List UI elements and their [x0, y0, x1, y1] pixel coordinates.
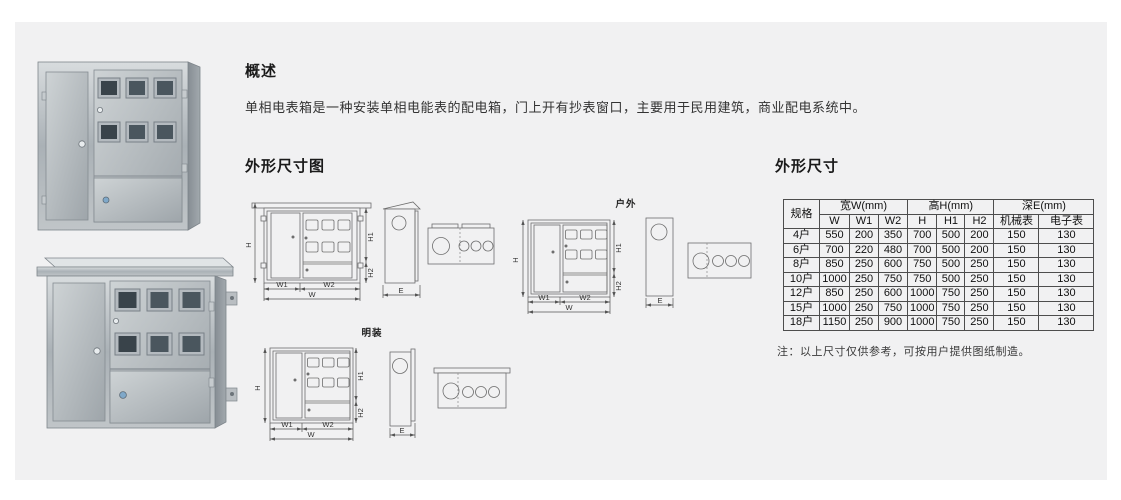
value-cell: 220 — [850, 243, 879, 258]
value-cell: 130 — [1039, 301, 1094, 316]
value-cell: 130 — [1039, 229, 1094, 244]
spec-cell: 10户 — [784, 272, 820, 287]
value-cell: 480 — [879, 243, 908, 258]
col-header-w1: W1 — [850, 214, 879, 229]
value-cell: 750 — [937, 301, 965, 316]
value-cell: 1000 — [820, 301, 850, 316]
overview-title: 概述 — [245, 60, 277, 81]
table-row: 8户850250600750500250150130 — [784, 258, 1094, 273]
value-cell: 250 — [850, 287, 879, 302]
value-cell: 200 — [965, 243, 994, 258]
overview-body: 单相电表箱是一种安装单相电能表的配电箱，门上开有抄表窗口，主要用于民用建筑，商业… — [245, 97, 866, 116]
value-cell: 150 — [994, 243, 1039, 258]
dim-label-h: H — [245, 242, 253, 247]
col-header-mech-meter: 机械表 — [994, 214, 1039, 229]
value-cell: 1000 — [820, 272, 850, 287]
value-cell: 250 — [965, 287, 994, 302]
dim-label-e: E — [657, 296, 662, 305]
value-cell: 700 — [820, 243, 850, 258]
diagram-group-surface: 明装 H H1 H2 W1 W2 W E — [253, 327, 510, 441]
value-cell: 350 — [879, 229, 908, 244]
value-cell: 1000 — [908, 316, 937, 331]
value-cell: 150 — [994, 272, 1039, 287]
value-cell: 1000 — [908, 301, 937, 316]
col-header-h2: H2 — [965, 214, 994, 229]
spec-cell: 8户 — [784, 258, 820, 273]
spec-cell: 15户 — [784, 301, 820, 316]
table-row: 10户1000250750750500250150130 — [784, 272, 1094, 287]
value-cell: 550 — [820, 229, 850, 244]
table-header-row-sub: W W1 W2 H H1 H2 机械表 电子表 — [784, 214, 1094, 229]
value-cell: 200 — [965, 229, 994, 244]
spec-cell: 12户 — [784, 287, 820, 302]
value-cell: 750 — [937, 287, 965, 302]
col-header-w: W — [820, 214, 850, 229]
spec-cell: 18户 — [784, 316, 820, 331]
value-cell: 130 — [1039, 272, 1094, 287]
dimension-table-body: 4户5502003507005002001501306户700220480700… — [784, 229, 1094, 331]
product-photo-indoor-meter-box — [28, 56, 213, 244]
dimensions-title: 外形尺寸 — [775, 155, 839, 176]
value-cell: 500 — [937, 229, 965, 244]
dim-label-h1: H1 — [356, 371, 365, 381]
value-cell: 150 — [994, 287, 1039, 302]
value-cell: 250 — [850, 258, 879, 273]
col-header-h1: H1 — [937, 214, 965, 229]
value-cell: 130 — [1039, 243, 1094, 258]
value-cell: 250 — [965, 316, 994, 331]
col-header-width-group: 宽W(mm) — [820, 200, 908, 215]
value-cell: 900 — [879, 316, 908, 331]
table-row: 15户10002507501000750250150130 — [784, 301, 1094, 316]
value-cell: 250 — [850, 272, 879, 287]
value-cell: 750 — [908, 272, 937, 287]
value-cell: 500 — [937, 258, 965, 273]
value-cell: 700 — [908, 229, 937, 244]
table-row: 6户700220480700500200150130 — [784, 243, 1094, 258]
value-cell: 250 — [965, 272, 994, 287]
dim-label-h2: H2 — [614, 281, 623, 291]
table-note: 注：以上尺寸仅供参考，可按用户提供图纸制造。 — [777, 343, 1030, 359]
dim-label-e: E — [398, 286, 403, 295]
dim-label-h2: H2 — [366, 268, 375, 278]
dim-label-w: W — [307, 430, 315, 439]
value-cell: 700 — [908, 243, 937, 258]
col-header-elec-meter: 电子表 — [1039, 214, 1094, 229]
value-cell: 850 — [820, 258, 850, 273]
dimension-diagrams: H H1 H2 W1 W2 W E 户外 — [245, 182, 760, 450]
dim-label-w2: W2 — [322, 420, 333, 429]
table-row: 12户8502506001000750250150130 — [784, 287, 1094, 302]
table-row: 18户11502509001000750250150130 — [784, 316, 1094, 331]
spec-cell: 6户 — [784, 243, 820, 258]
col-header-w2: W2 — [879, 214, 908, 229]
value-cell: 130 — [1039, 316, 1094, 331]
table-row: 4户550200350700500200150130 — [784, 229, 1094, 244]
col-header-height-group: 高H(mm) — [908, 200, 994, 215]
dim-label-w2: W2 — [579, 293, 590, 302]
value-cell: 600 — [879, 287, 908, 302]
dim-label-h: H — [511, 257, 520, 262]
product-photo-outdoor-meter-box — [25, 252, 245, 480]
value-cell: 850 — [820, 287, 850, 302]
value-cell: 250 — [850, 301, 879, 316]
value-cell: 150 — [994, 229, 1039, 244]
col-header-depth-group: 深E(mm) — [994, 200, 1094, 215]
value-cell: 750 — [879, 272, 908, 287]
dim-label-e: E — [399, 426, 404, 435]
spec-cell: 4户 — [784, 229, 820, 244]
dim-label-w1: W1 — [281, 420, 292, 429]
value-cell: 250 — [965, 301, 994, 316]
value-cell: 250 — [965, 258, 994, 273]
value-cell: 750 — [908, 258, 937, 273]
surface-label: 明装 — [361, 327, 382, 339]
meter-box-illustration — [37, 258, 237, 428]
col-header-spec: 规格 — [784, 200, 820, 229]
value-cell: 750 — [879, 301, 908, 316]
dim-label-h1: H1 — [366, 232, 375, 242]
value-cell: 130 — [1039, 258, 1094, 273]
meter-box-illustration — [38, 62, 200, 230]
diagram-group-canopy: H H1 H2 W1 W2 W E — [245, 202, 494, 301]
value-cell: 150 — [994, 258, 1039, 273]
table-header-row-groups: 规格 宽W(mm) 高H(mm) 深E(mm) — [784, 200, 1094, 215]
outdoor-label: 户外 — [614, 198, 636, 210]
dimension-table: 规格 宽W(mm) 高H(mm) 深E(mm) W W1 W2 H H1 H2 … — [783, 199, 1094, 331]
dim-label-w1: W1 — [276, 280, 287, 289]
value-cell: 150 — [994, 301, 1039, 316]
dim-label-w1: W1 — [538, 293, 549, 302]
col-header-h: H — [908, 214, 937, 229]
diagram-group-outdoor: 户外 H H1 H2 W1 W2 W E — [511, 198, 751, 314]
dim-label-h2: H2 — [356, 408, 365, 418]
value-cell: 1000 — [908, 287, 937, 302]
value-cell: 1150 — [820, 316, 850, 331]
value-cell: 750 — [937, 316, 965, 331]
value-cell: 500 — [937, 272, 965, 287]
value-cell: 200 — [850, 229, 879, 244]
value-cell: 130 — [1039, 287, 1094, 302]
value-cell: 250 — [850, 316, 879, 331]
dim-label-w: W — [565, 303, 573, 312]
dim-label-w: W — [308, 290, 316, 299]
dim-label-h: H — [253, 385, 262, 390]
value-cell: 150 — [994, 316, 1039, 331]
value-cell: 600 — [879, 258, 908, 273]
dim-label-h1: H1 — [614, 243, 623, 253]
drawings-title: 外形尺寸图 — [245, 155, 325, 176]
value-cell: 500 — [937, 243, 965, 258]
dim-label-w2: W2 — [323, 280, 334, 289]
